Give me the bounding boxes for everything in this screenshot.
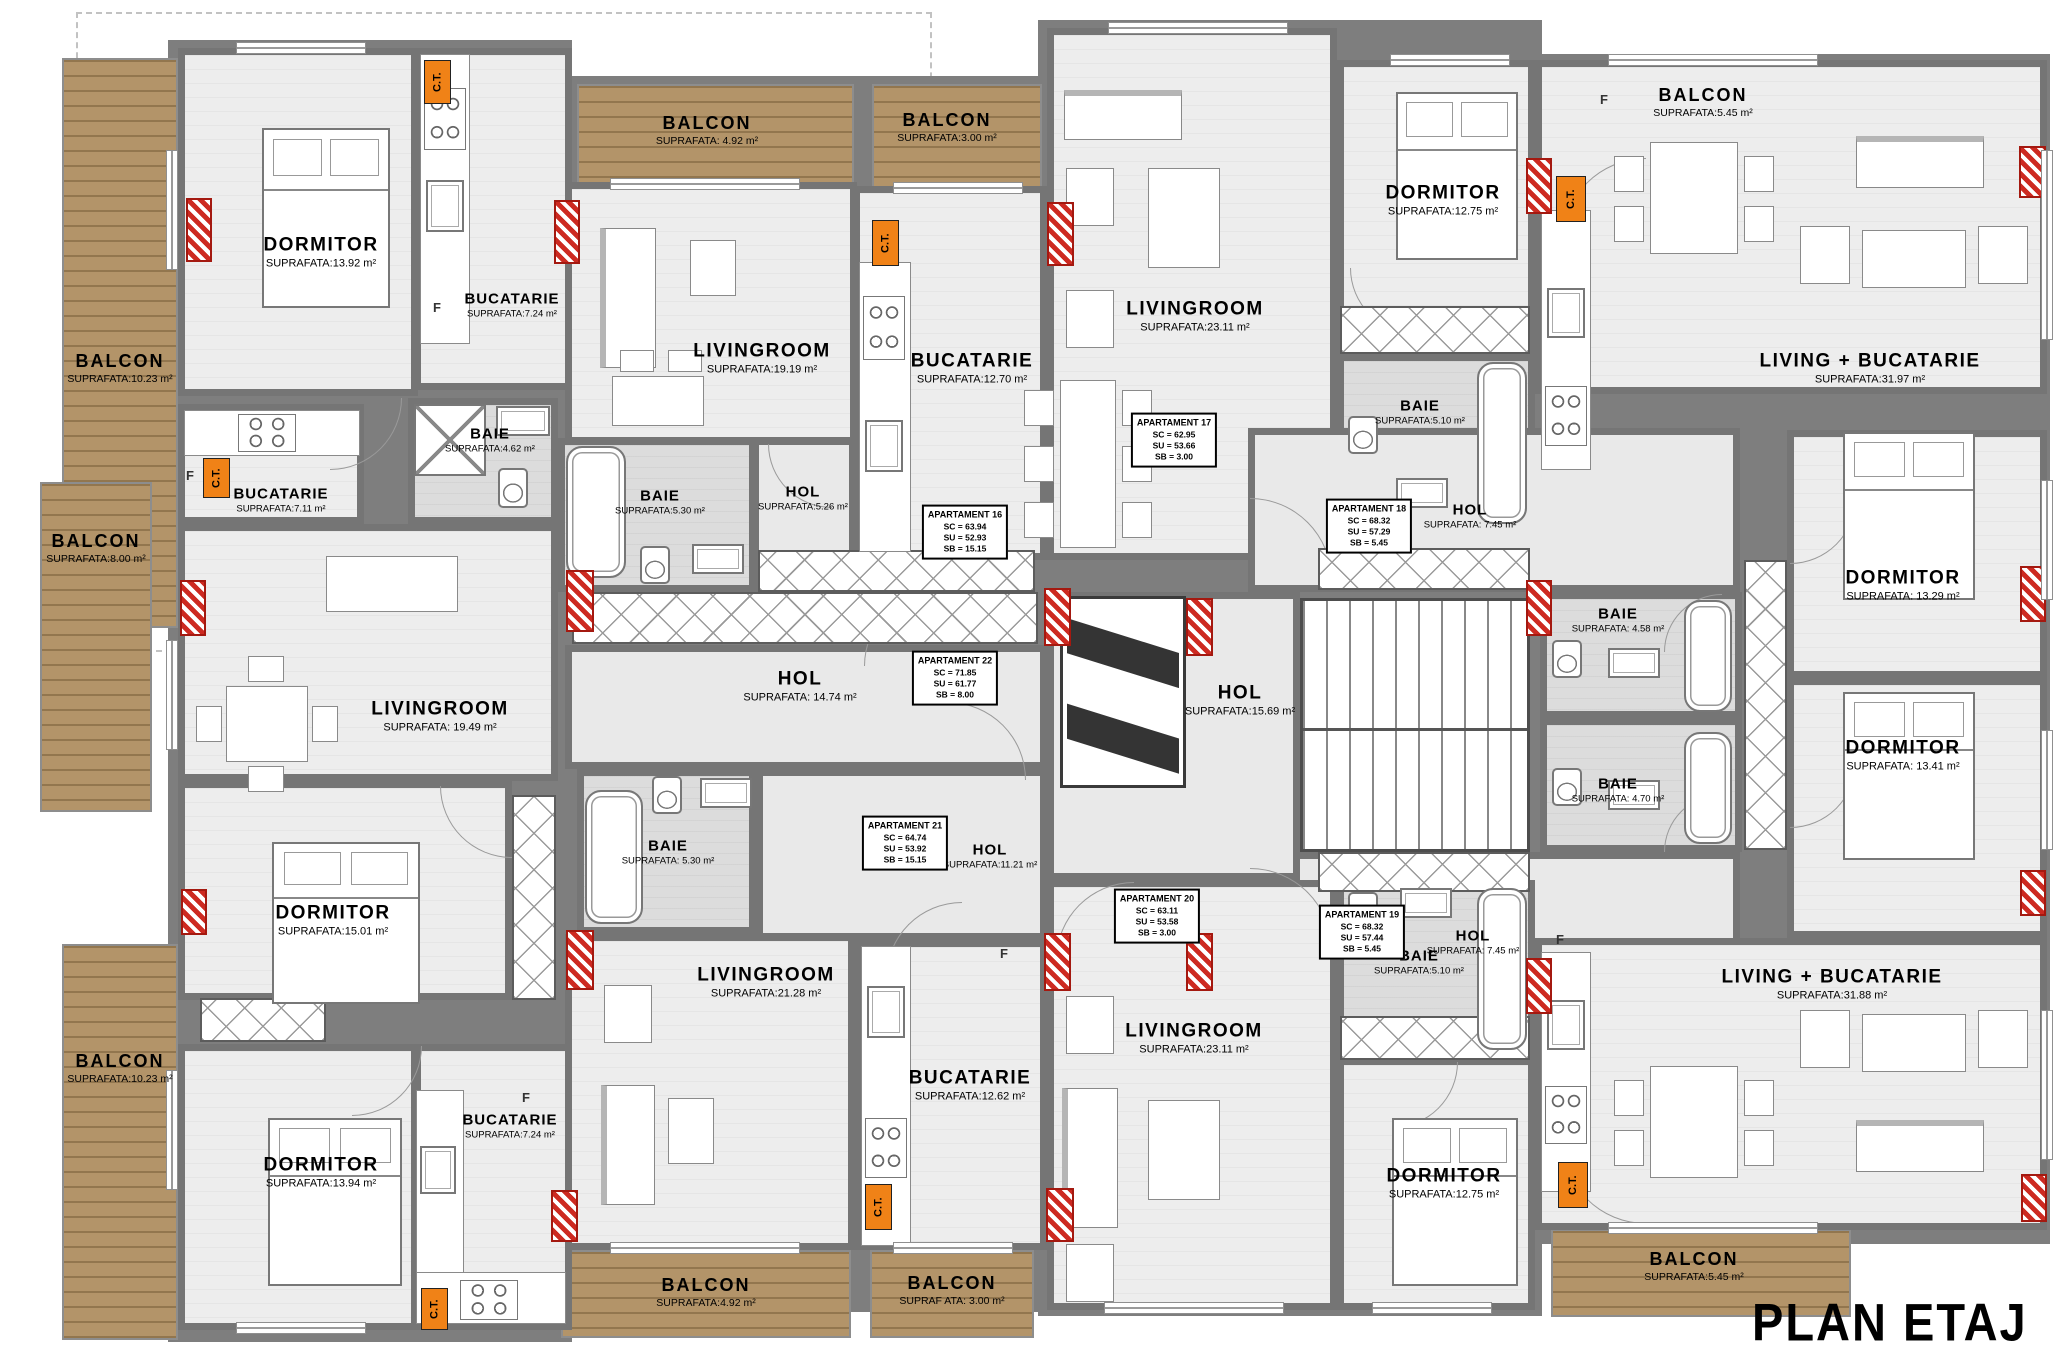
- closet-strip: [572, 592, 1038, 644]
- stove: [1545, 1086, 1587, 1144]
- label-livingroom-21: LIVINGROOMSUPRAFATA:21.28 m²: [697, 965, 834, 1000]
- balcony-name: BALCON: [67, 351, 172, 372]
- fridge-marker: F: [1000, 946, 1008, 961]
- ct-boiler: C.T.: [421, 1288, 448, 1330]
- room-name: HOL: [1424, 502, 1517, 519]
- room-area: SUPRAFATA:12.75 m²: [1386, 1189, 1501, 1201]
- room-area: SUPRAFATA:13.94 m²: [263, 1178, 378, 1190]
- label-balcony-top-b: BALCONSUPRAFATA:3.00 m²: [897, 110, 996, 144]
- room-area: SUPRAFATA:7.24 m²: [462, 1130, 557, 1141]
- ct-boiler: C.T.: [203, 458, 230, 498]
- room-area: SUPRAFATA:15.01 m²: [275, 926, 390, 938]
- window: [1104, 1302, 1284, 1314]
- armchair: [1066, 1244, 1114, 1302]
- column: [186, 198, 212, 262]
- sofa: [1064, 90, 1182, 140]
- sink: [426, 180, 464, 232]
- coffee-table: [1148, 168, 1220, 268]
- room-area: SUPRAFATA: 14.74 m²: [743, 692, 856, 704]
- column: [1047, 202, 1074, 266]
- room-name: HOL: [1427, 928, 1520, 945]
- ct-boiler: C.T.: [424, 60, 451, 104]
- apartment-name: APARTAMENT 19: [1325, 910, 1399, 922]
- window: [236, 42, 366, 54]
- balcony-name: BALCON: [656, 1275, 755, 1296]
- label-balcony-top-right: BALCONSUPRAFATA:5.45 m²: [1653, 85, 1752, 119]
- balcony-area: SUPRAFATA:4.92 m²: [656, 1297, 755, 1309]
- window: [2041, 1010, 2053, 1160]
- sink: [1547, 288, 1585, 338]
- column: [1046, 1188, 1074, 1242]
- sideboard: [326, 556, 458, 612]
- closet-strip: [200, 998, 326, 1042]
- window: [893, 1242, 1013, 1254]
- column: [180, 580, 206, 636]
- pillow: [351, 852, 408, 886]
- armchair: [1978, 1010, 2028, 1068]
- label-livingroom-22: LIVINGROOMSUPRAFATA: 19.49 m²: [371, 699, 508, 734]
- room-area: SUPRAFATA:12.75 m²: [1385, 206, 1500, 218]
- fridge-marker: F: [522, 1090, 530, 1105]
- label-bucatarie-22: BUCATARIESUPRAFATA:7.11 m²: [233, 486, 328, 515]
- label-hol-central: HOLSUPRAFATA:15.69 m²: [1185, 683, 1295, 718]
- chair: [1744, 156, 1774, 192]
- room-name: DORMITOR: [1385, 183, 1500, 205]
- chair: [1024, 390, 1054, 426]
- coffee-table: [1862, 230, 1966, 288]
- room-area: SUPRAFATA: 19.49 m²: [371, 722, 508, 734]
- chair: [248, 766, 284, 792]
- fridge-marker: F: [186, 468, 194, 483]
- room-name: LIVINGROOM: [1126, 299, 1263, 321]
- apartment-su: SU = 52.93: [928, 532, 1002, 543]
- balcony-area: SUPRAF ATA: 3.00 m²: [899, 1295, 1004, 1307]
- window: [1608, 54, 1818, 66]
- apartment-su: SU = 53.58: [1120, 916, 1194, 927]
- column: [1526, 158, 1552, 214]
- room-name: BUCATARIE: [462, 1112, 557, 1129]
- room-area: SUPRAFATA:31.97 m²: [1759, 374, 1980, 386]
- room-area: SUPRAFATA:12.70 m²: [911, 374, 1034, 386]
- room-area: SUPRAFATA:4.62 m²: [445, 444, 535, 455]
- bed: [1392, 1118, 1518, 1286]
- room-name: BUCATARIE: [233, 486, 328, 503]
- chair: [1024, 446, 1054, 482]
- apartment-sb: SB = 3.00: [1120, 927, 1194, 938]
- balcony-name: BALCON: [899, 1273, 1004, 1294]
- balcony-area: SUPRAFATA:5.45 m²: [1653, 107, 1752, 119]
- bathtub: [1477, 888, 1527, 1050]
- sofa: [1856, 136, 1984, 188]
- balcony-area: SUPRAFATA:10.23 m²: [67, 373, 172, 385]
- label-hol-21: HOLSUPRAFATA:11.21 m²: [943, 842, 1038, 871]
- column: [1044, 588, 1071, 646]
- pillow: [1406, 102, 1453, 137]
- window: [2041, 480, 2053, 600]
- room-name: BAIE: [1572, 606, 1665, 623]
- window: [166, 150, 178, 270]
- label-balcony-bottom-right: BALCONSUPRAFATA:5.45 m²: [1644, 1249, 1743, 1283]
- label-balcony-bottom-b: BALCONSUPRAF ATA: 3.00 m²: [899, 1273, 1004, 1307]
- room-area: SUPRAFATA:12.62 m²: [909, 1091, 1032, 1103]
- armchair: [604, 985, 652, 1043]
- bathtub: [1684, 600, 1732, 712]
- apartment-su: SU = 57.44: [1325, 932, 1399, 943]
- label-dormitor-22: DORMITORSUPRAFATA:15.01 m²: [275, 903, 390, 938]
- balcony-area: SUPRAFATA:8.00 m²: [46, 553, 145, 565]
- window: [1108, 22, 1288, 34]
- ct-boiler: C.T.: [1556, 176, 1586, 222]
- bed: [1396, 92, 1518, 260]
- ct-boiler: C.T.: [872, 220, 899, 266]
- apartment-sc: SC = 68.32: [1325, 921, 1399, 932]
- room-name: HOL: [1185, 683, 1295, 705]
- label-baie-21: BAIESUPRAFATA: 5.30 m²: [622, 838, 715, 867]
- stove: [460, 1280, 518, 1320]
- apartment-sb: SB = 8.00: [918, 689, 992, 700]
- apartment-info-18: APARTAMENT 18SC = 68.32SU = 57.29SB = 5.…: [1326, 499, 1412, 554]
- apartment-info-17: APARTAMENT 17SC = 62.95SU = 53.66SB = 3.…: [1131, 413, 1217, 468]
- label-baie-16: BAIESUPRAFATA:5.30 m²: [615, 488, 705, 517]
- label-dormitor-21: DORMITORSUPRAFATA:13.94 m²: [263, 1155, 378, 1190]
- column: [1526, 580, 1552, 636]
- window: [1390, 54, 1510, 66]
- label-living-bucatarie-19: LIVING + BUCATARIESUPRAFATA:31.88 m²: [1721, 967, 1942, 1002]
- fridge-marker: F: [1556, 932, 1564, 947]
- chair: [1614, 1080, 1644, 1116]
- apartment-name: APARTAMENT 16: [928, 510, 1002, 522]
- label-dormitor-20: DORMITORSUPRAFATA:12.75 m²: [1386, 1166, 1501, 1201]
- closet-strip: [1318, 548, 1530, 590]
- coffee-table: [1862, 1014, 1966, 1072]
- column: [2021, 1174, 2047, 1222]
- pillow: [1459, 1128, 1507, 1163]
- armchair: [1066, 996, 1114, 1054]
- window: [893, 182, 1023, 194]
- label-balcony-bottom-a: BALCONSUPRAFATA:4.92 m²: [656, 1275, 755, 1309]
- label-hol-22: HOLSUPRAFATA: 14.74 m²: [743, 669, 856, 704]
- elevator-door-icon: [1067, 696, 1180, 774]
- closet-strip: [1744, 560, 1787, 850]
- apartment-name: APARTAMENT 22: [918, 656, 992, 668]
- room-area: SUPRAFATA:7.24 m²: [464, 309, 559, 320]
- apartment-info-16: APARTAMENT 16SC = 63.94SU = 52.93SB = 15…: [922, 505, 1008, 560]
- apartment-info-20: APARTAMENT 20SC = 63.11SU = 53.58SB = 3.…: [1114, 889, 1200, 944]
- bed: [268, 1118, 402, 1286]
- sink: [1400, 888, 1452, 918]
- label-livingroom-20: LIVINGROOMSUPRAFATA:23.11 m²: [1125, 1021, 1262, 1056]
- bed: [1843, 692, 1975, 860]
- page-title: PLAN ETAJ 3: [1752, 1291, 2070, 1361]
- apartment-sc: SC = 68.32: [1332, 515, 1406, 526]
- sofa: [1856, 1120, 1984, 1172]
- label-bucatarie-21: BUCATARIESUPRAFATA:7.24 m²: [462, 1112, 557, 1141]
- sofa: [600, 228, 656, 368]
- chair: [1744, 1080, 1774, 1116]
- chair: [1614, 156, 1644, 192]
- balcony-area: SUPRAFATA:10.23 m²: [67, 1073, 172, 1085]
- label-dormitor-17: DORMITORSUPRAFATA:12.75 m²: [1385, 183, 1500, 218]
- label-balcony-top-a: BALCONSUPRAFATA: 4.92 m²: [656, 113, 758, 147]
- apartment-sb: SB = 5.45: [1325, 943, 1399, 954]
- stove: [1545, 386, 1587, 446]
- sink: [867, 986, 905, 1038]
- label-dormitor-19: DORMITORSUPRAFATA: 13.41 m²: [1845, 738, 1960, 773]
- stove: [238, 414, 296, 452]
- column: [566, 930, 594, 990]
- sink: [1547, 1000, 1585, 1050]
- balcony-name: BALCON: [46, 531, 145, 552]
- toilet: [1552, 640, 1582, 678]
- window: [166, 1070, 178, 1190]
- elevator-door-icon: [1067, 610, 1180, 688]
- pillow: [330, 139, 379, 176]
- room-area: SUPRAFATA:11.21 m²: [943, 860, 1038, 871]
- apartment-su: SU = 61.77: [918, 678, 992, 689]
- label-dormitor-18: DORMITORSUPRAFATA: 13.29 m²: [1845, 568, 1960, 603]
- label-living-bucatarie-18: LIVING + BUCATARIESUPRAFATA:31.97 m²: [1759, 351, 1980, 386]
- bed: [262, 128, 390, 308]
- room-area: SUPRAFATA:7.11 m²: [233, 504, 328, 515]
- apartment-sc: SC = 63.11: [1120, 905, 1194, 916]
- apartment-name: APARTAMENT 20: [1120, 894, 1194, 906]
- chair: [620, 350, 654, 372]
- room-name: LIVING + BUCATARIE: [1759, 351, 1980, 373]
- room-area: SUPRAFATA:5.30 m²: [615, 506, 705, 517]
- apartment-sc: SC = 62.95: [1137, 429, 1211, 440]
- label-balcony-bottom-left: BALCONSUPRAFATA:10.23 m²: [67, 1051, 172, 1085]
- coffee-table: [668, 1098, 714, 1164]
- bathtub: [1684, 732, 1732, 844]
- room-name: DORMITOR: [263, 1155, 378, 1177]
- pillow: [1854, 702, 1905, 737]
- label-bucatarie-17: BUCATARIESUPRAFATA:12.70 m²: [911, 351, 1034, 386]
- apartment-sb: SB = 15.15: [928, 543, 1002, 554]
- floor-plan: C.T. C.T. C.T. C.T. C.T. C.T. C.T. F F F…: [0, 0, 2070, 1361]
- room-area: SUPRAFATA:21.28 m²: [697, 988, 834, 1000]
- room-area: SUPRAFATA: 5.30 m²: [622, 856, 715, 867]
- room-area: SUPRAFATA:23.11 m²: [1126, 322, 1263, 334]
- room-area: SUPRAFATA:19.19 m²: [693, 364, 830, 376]
- window: [166, 640, 178, 750]
- window: [610, 178, 800, 190]
- column: [181, 889, 207, 935]
- chair: [1744, 1130, 1774, 1166]
- sofa: [601, 1085, 655, 1205]
- column: [554, 200, 580, 264]
- sink: [692, 544, 744, 574]
- label-baie-18: BAIESUPRAFATA: 4.58 m²: [1572, 606, 1665, 635]
- room-name: BAIE: [1572, 776, 1665, 793]
- balcony-name: BALCON: [1653, 85, 1752, 106]
- room-name: DORMITOR: [1845, 568, 1960, 590]
- room-name: HOL: [743, 669, 856, 691]
- column: [2020, 870, 2046, 916]
- apartment-info-21: APARTAMENT 21SC = 64.74SU = 53.92SB = 15…: [862, 816, 948, 871]
- apartment-name: APARTAMENT 17: [1137, 418, 1211, 430]
- chair: [248, 656, 284, 682]
- fridge-marker: F: [433, 300, 441, 315]
- sink: [700, 778, 752, 808]
- room-area: SUPRAFATA: 13.41 m²: [1845, 761, 1960, 773]
- apartment-info-19: APARTAMENT 19SC = 68.32SU = 57.44SB = 5.…: [1319, 905, 1405, 960]
- room-area: SUPRAFATA:5.10 m²: [1374, 966, 1464, 977]
- armchair: [1978, 226, 2028, 284]
- window: [610, 1242, 800, 1254]
- pillow: [273, 139, 322, 176]
- armchair: [1066, 290, 1114, 348]
- room-name: LIVINGROOM: [371, 699, 508, 721]
- room-area: SUPRAFATA: 13.29 m²: [1845, 591, 1960, 603]
- chair: [1024, 502, 1054, 538]
- apartment-info-22: APARTAMENT 22SC = 71.85SU = 61.77SB = 8.…: [912, 651, 998, 706]
- room-area: SUPRAFATA:23.11 m²: [1125, 1044, 1262, 1056]
- stairwell: [1300, 598, 1530, 852]
- sink: [420, 1146, 456, 1194]
- balcony-area: SUPRAFATA:3.00 m²: [897, 132, 996, 144]
- room-name: LIVINGROOM: [697, 965, 834, 987]
- balcony-name: BALCON: [1644, 1249, 1743, 1270]
- room-name: DORMITOR: [1845, 738, 1960, 760]
- label-dormitor-16: DORMITORSUPRAFATA:13.92 m²: [263, 235, 378, 270]
- sink: [1608, 648, 1660, 678]
- apartment-sb: SB = 5.45: [1332, 537, 1406, 548]
- pillow: [1913, 442, 1964, 477]
- pillow: [284, 852, 341, 886]
- dining-table: [1060, 380, 1116, 548]
- chair: [1122, 502, 1152, 538]
- column: [1186, 598, 1213, 656]
- room-area: SUPRAFATA: 4.70 m²: [1572, 794, 1665, 805]
- room-name: BUCATARIE: [909, 1068, 1032, 1090]
- room-area: SUPRAFATA: 7.45 m²: [1424, 520, 1517, 531]
- room-area: SUPRAFATA:5.10 m²: [1375, 416, 1465, 427]
- apartment-sb: SB = 3.00: [1137, 451, 1211, 462]
- room-name: BAIE: [622, 838, 715, 855]
- label-livingroom-16: LIVINGROOMSUPRAFATA:19.19 m²: [693, 341, 830, 376]
- room-name: BAIE: [615, 488, 705, 505]
- balcony-name: BALCON: [656, 113, 758, 134]
- toilet: [640, 546, 670, 584]
- closet-strip: [1318, 852, 1530, 892]
- balcony-bottom-left: [62, 944, 178, 1340]
- armchair: [1800, 226, 1850, 284]
- armchair: [690, 240, 736, 296]
- balcony-name: BALCON: [897, 110, 996, 131]
- sink: [865, 420, 903, 472]
- balcony-area: SUPRAFATA:5.45 m²: [1644, 1271, 1743, 1283]
- room-name: HOL: [943, 842, 1038, 859]
- balcony-name: BALCON: [67, 1051, 172, 1072]
- apartment-sc: SC = 71.85: [918, 667, 992, 678]
- room-name: DORMITOR: [1386, 1166, 1501, 1188]
- stove: [865, 1118, 907, 1178]
- column: [551, 1190, 578, 1242]
- room-name: BUCATARIE: [911, 351, 1034, 373]
- apartment-su: SU = 57.29: [1332, 526, 1406, 537]
- window: [236, 1322, 366, 1334]
- chair: [1614, 206, 1644, 242]
- room-name: DORMITOR: [275, 903, 390, 925]
- column: [1526, 958, 1552, 1014]
- chair: [1744, 206, 1774, 242]
- pillow: [1461, 102, 1508, 137]
- dining-table: [226, 686, 308, 762]
- column: [566, 570, 594, 632]
- apartment-su: SU = 53.92: [868, 843, 942, 854]
- label-baie-22: BAIESUPRAFATA:4.62 m²: [445, 426, 535, 455]
- room-area: SUPRAFATA:31.88 m²: [1721, 990, 1942, 1002]
- dining-table: [1650, 142, 1738, 254]
- ct-boiler: C.T.: [1558, 1162, 1588, 1208]
- label-livingroom-17: LIVINGROOMSUPRAFATA:23.11 m²: [1126, 299, 1263, 334]
- label-hol-16: HOLSUPRAFATA:5.26 m²: [758, 484, 848, 513]
- label-baie-19: BAIESUPRAFATA: 4.70 m²: [1572, 776, 1665, 805]
- bathtub: [1477, 362, 1527, 524]
- room-name: LIVINGROOM: [693, 341, 830, 363]
- chair: [312, 706, 338, 742]
- window: [2041, 150, 2053, 340]
- room-name: HOL: [758, 484, 848, 501]
- closet-strip: [1340, 306, 1530, 354]
- toilet: [498, 468, 528, 508]
- stove: [863, 296, 905, 360]
- room-area: SUPRAFATA:15.69 m²: [1185, 706, 1295, 718]
- apartment-sb: SB = 15.15: [868, 854, 942, 865]
- room-name: BAIE: [1375, 398, 1465, 415]
- room-name: DORMITOR: [263, 235, 378, 257]
- window: [1608, 1222, 1818, 1234]
- ct-boiler: C.T.: [865, 1184, 892, 1230]
- apartment-name: APARTAMENT 21: [868, 821, 942, 833]
- pillow: [1913, 702, 1964, 737]
- armchair: [1800, 1010, 1850, 1068]
- room-area: SUPRAFATA:13.92 m²: [263, 258, 378, 270]
- room-name: LIVINGROOM: [1125, 1021, 1262, 1043]
- room-name: BUCATARIE: [464, 291, 559, 308]
- label-baie-17: BAIESUPRAFATA:5.10 m²: [1375, 398, 1465, 427]
- label-bucatarie-16: BUCATARIESUPRAFATA:7.24 m²: [464, 291, 559, 320]
- room-area: SUPRAFATA:5.26 m²: [758, 502, 848, 513]
- window: [1372, 1302, 1492, 1314]
- apartment-sc: SC = 64.74: [868, 832, 942, 843]
- pillow: [1854, 442, 1905, 477]
- coffee-table: [1148, 1100, 1220, 1200]
- dining-table: [612, 376, 704, 426]
- chair: [1614, 1130, 1644, 1166]
- apartment-sc: SC = 63.94: [928, 521, 1002, 532]
- label-hol-18: HOLSUPRAFATA: 7.45 m²: [1424, 502, 1517, 531]
- elevator-shaft: [1060, 596, 1186, 788]
- pillow: [1403, 1128, 1451, 1163]
- room-name: LIVING + BUCATARIE: [1721, 967, 1942, 989]
- label-bucatarie-20: BUCATARIESUPRAFATA:12.62 m²: [909, 1068, 1032, 1103]
- room-area: SUPRAFATA: 4.58 m²: [1572, 624, 1665, 635]
- room-name: BAIE: [445, 426, 535, 443]
- apartment-name: APARTAMENT 18: [1332, 504, 1406, 516]
- closet-strip: [512, 795, 556, 1000]
- apartment-su: SU = 53.66: [1137, 440, 1211, 451]
- column: [1044, 933, 1071, 991]
- label-balcony-mid-left: BALCONSUPRAFATA:8.00 m²: [46, 531, 145, 565]
- toilet: [652, 776, 682, 814]
- label-balcony-top-left: BALCONSUPRAFATA:10.23 m²: [67, 351, 172, 385]
- chair: [196, 706, 222, 742]
- fridge-marker: F: [1600, 92, 1608, 107]
- dining-table: [1650, 1066, 1738, 1178]
- balcony-area: SUPRAFATA: 4.92 m²: [656, 135, 758, 147]
- window: [2041, 730, 2053, 850]
